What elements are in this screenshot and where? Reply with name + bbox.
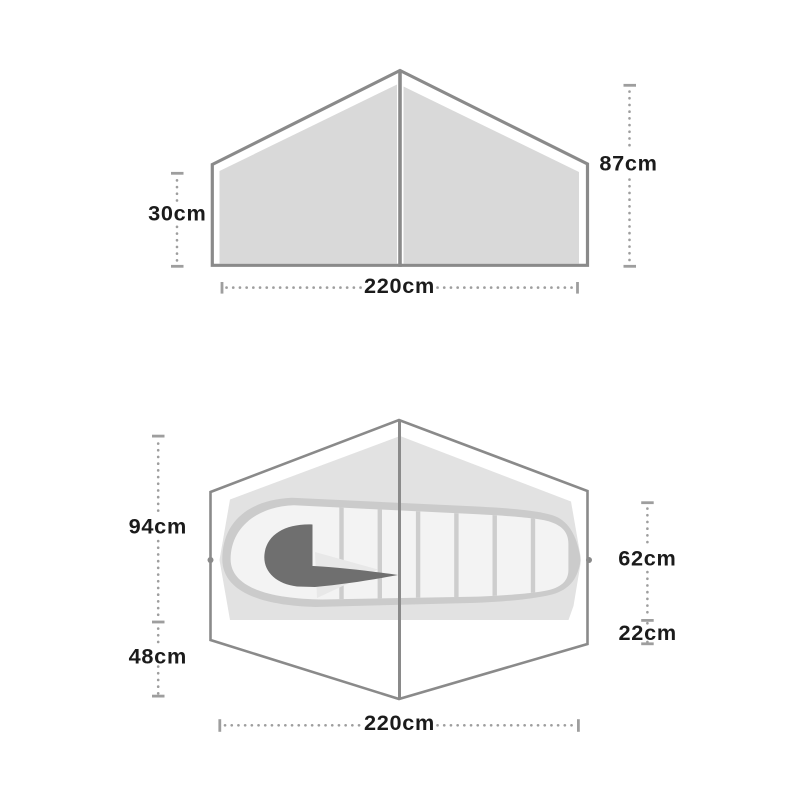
svg-text:30cm: 30cm [148, 200, 206, 225]
svg-text:87cm: 87cm [599, 150, 657, 175]
svg-text:62cm: 62cm [618, 546, 676, 571]
svg-text:48cm: 48cm [129, 643, 187, 668]
svg-text:220cm: 220cm [364, 273, 435, 298]
svg-text:220cm: 220cm [364, 710, 435, 735]
svg-text:94cm: 94cm [129, 514, 187, 539]
svg-text:22cm: 22cm [619, 620, 677, 645]
